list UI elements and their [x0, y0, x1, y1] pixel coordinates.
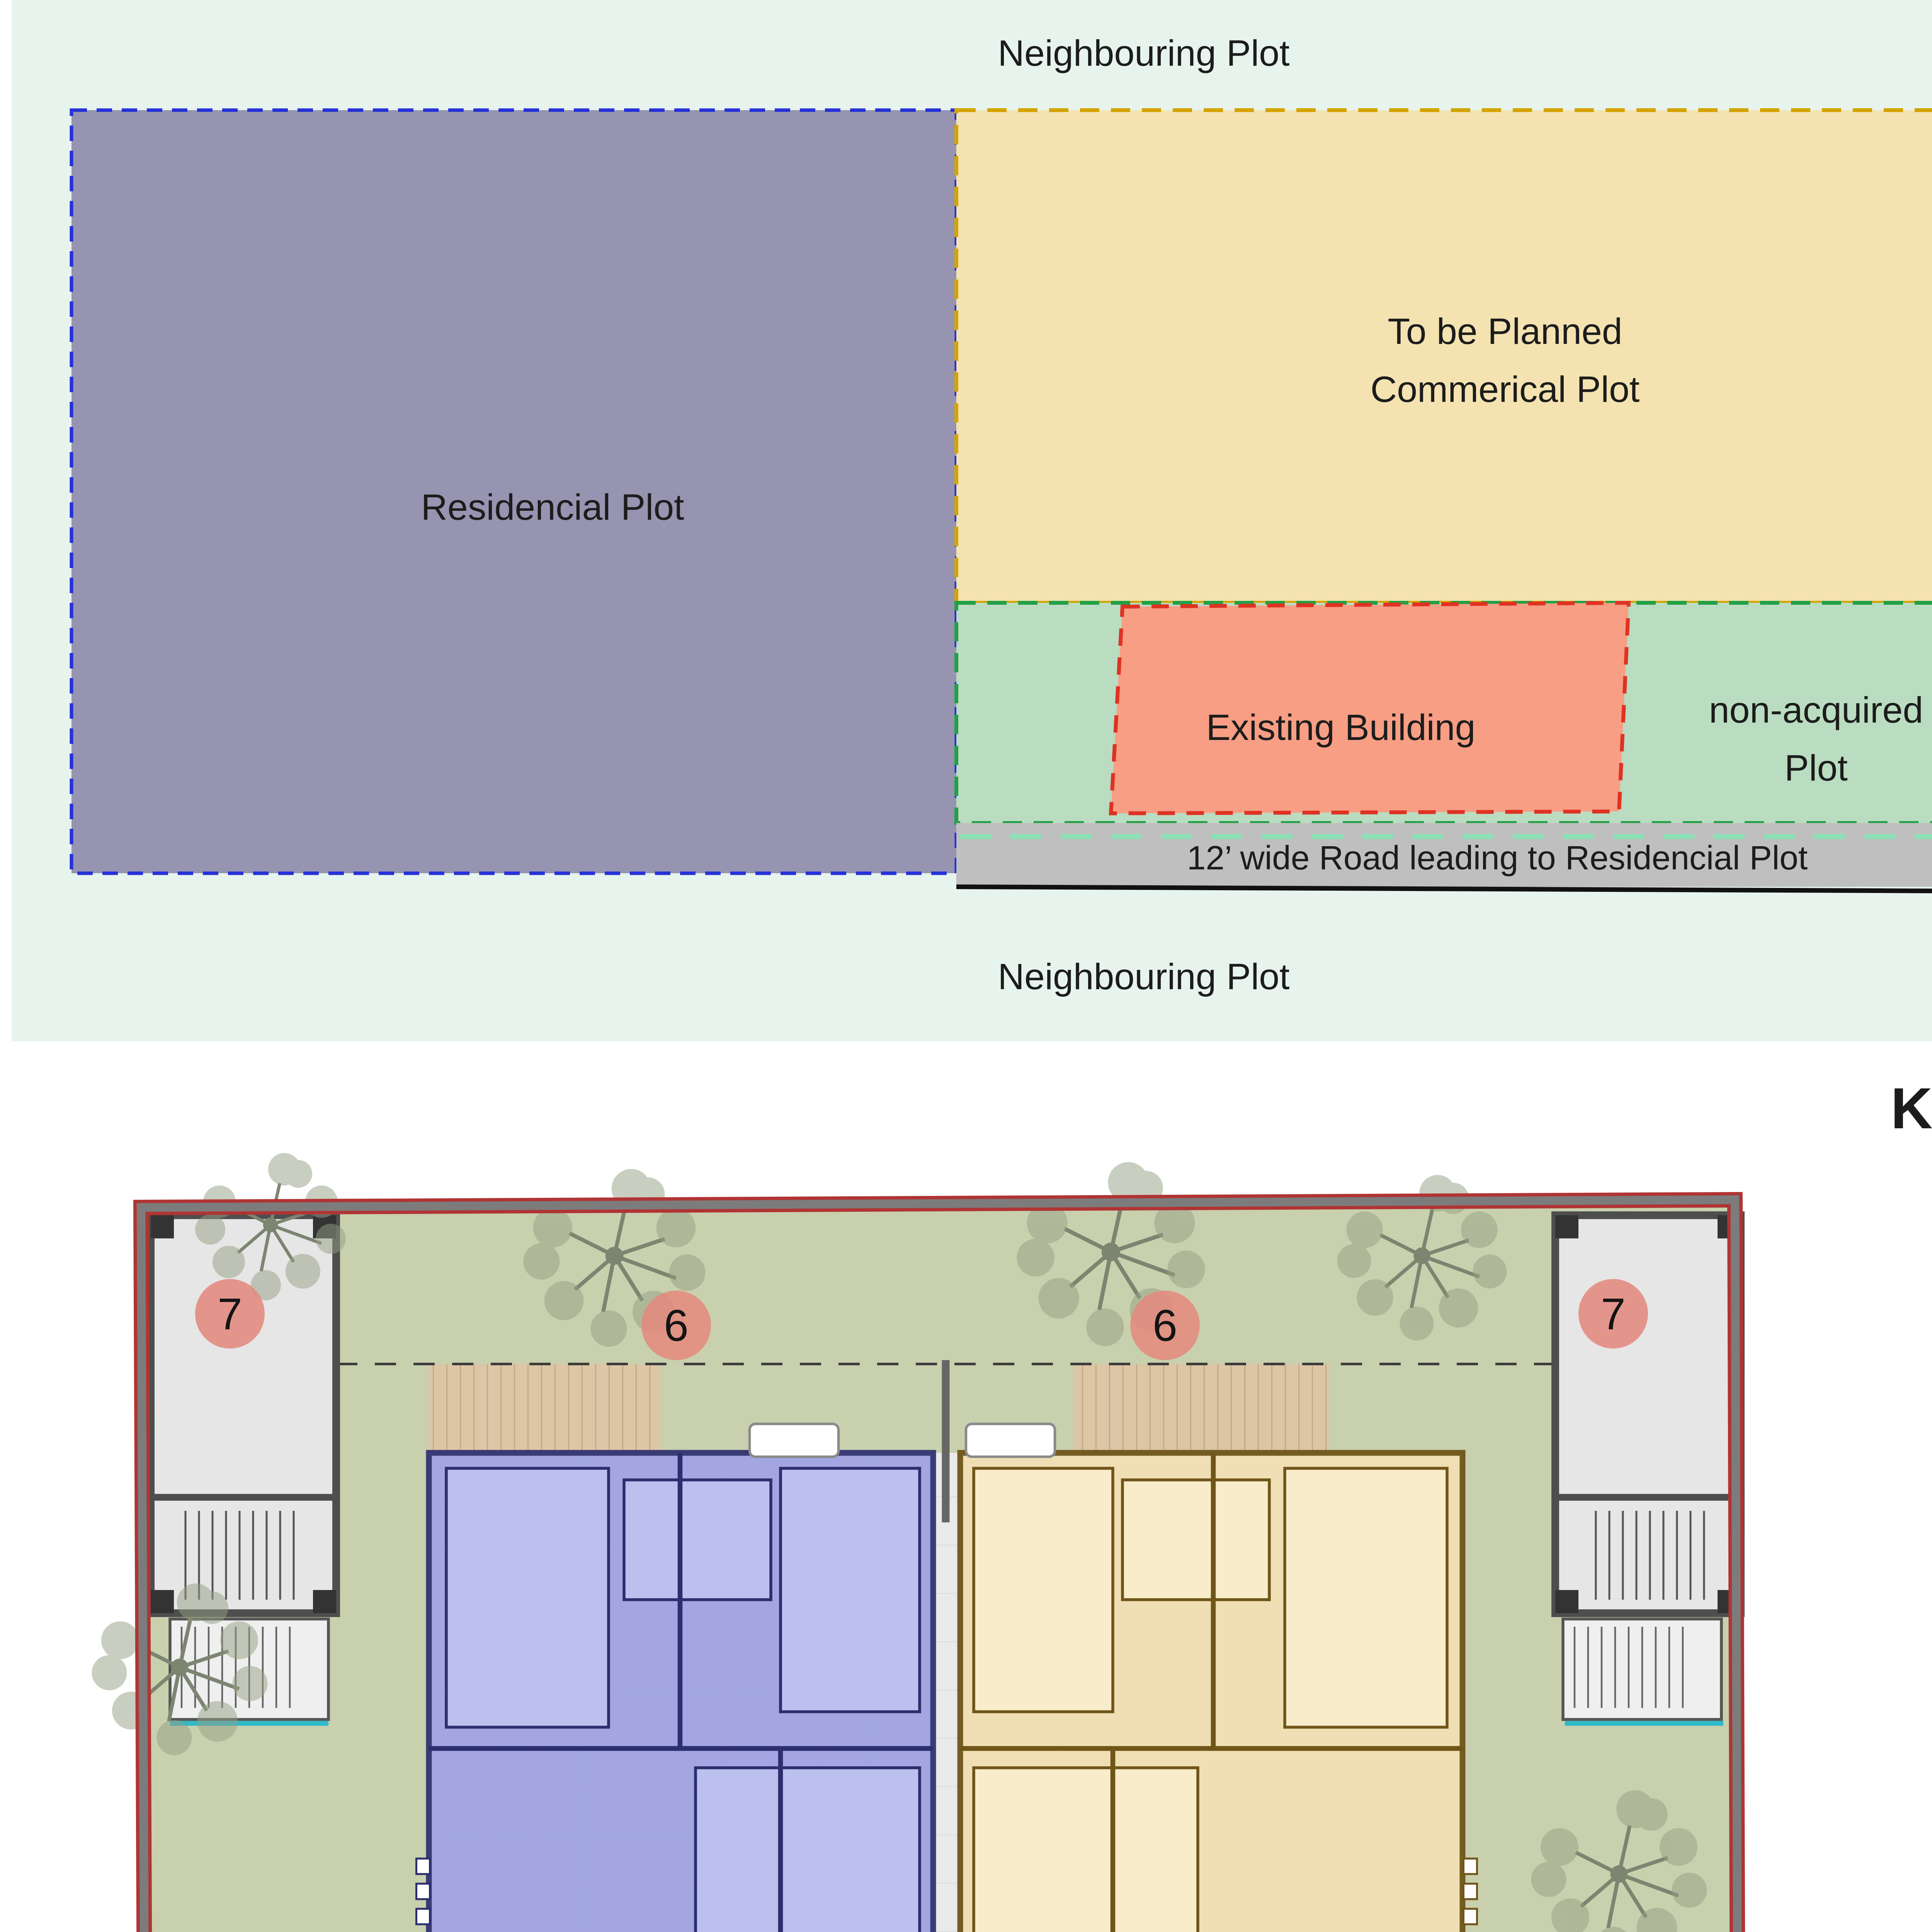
servant-quarter-right	[1555, 1215, 1741, 1723]
commercial-plot	[956, 110, 1932, 603]
porch-villa2	[966, 1424, 1055, 1457]
plan-drawing: Neighbouring Plot Residencial Plot To be…	[0, 0, 1932, 1932]
villa-2	[960, 1453, 1477, 1932]
residential-plot-label: Residencial Plot	[421, 487, 684, 528]
site-plan: N N Villa- 1 Villa- 2 Site Plan	[92, 1153, 1932, 1932]
marker-7: 7	[195, 1279, 265, 1349]
non-acquired-label-2: Plot	[1784, 748, 1848, 789]
neighbouring-plot-top-label: Neighbouring Plot	[998, 33, 1289, 74]
neighbouring-plot-bottom-label: Neighbouring Plot	[998, 956, 1289, 997]
marker-7: 7	[1578, 1279, 1648, 1349]
back-lawn	[143, 1200, 1737, 1453]
commercial-plot-label-1: To be Planned	[1388, 311, 1622, 352]
porch-villa1	[750, 1424, 838, 1457]
villa-1	[417, 1453, 933, 1932]
commercial-plot-label-2: Commerical Plot	[1371, 369, 1640, 410]
marker-6: 6	[1130, 1291, 1200, 1360]
marker-6: 6	[641, 1291, 711, 1360]
access-road-label: 12’ wide Road leading to Residencial Plo…	[1187, 839, 1808, 877]
page: Neighbouring Plot Residencial Plot To be…	[0, 0, 1932, 1932]
key-plan-title: Key Plan	[1891, 1076, 1932, 1141]
non-acquired-label-1: non-acquired	[1709, 690, 1923, 731]
existing-building-label: Existing Building	[1206, 707, 1476, 748]
key-plan: Neighbouring Plot Residencial Plot To be…	[12, 0, 1932, 1165]
deck-left	[429, 1364, 661, 1453]
deck-right	[1074, 1364, 1329, 1453]
